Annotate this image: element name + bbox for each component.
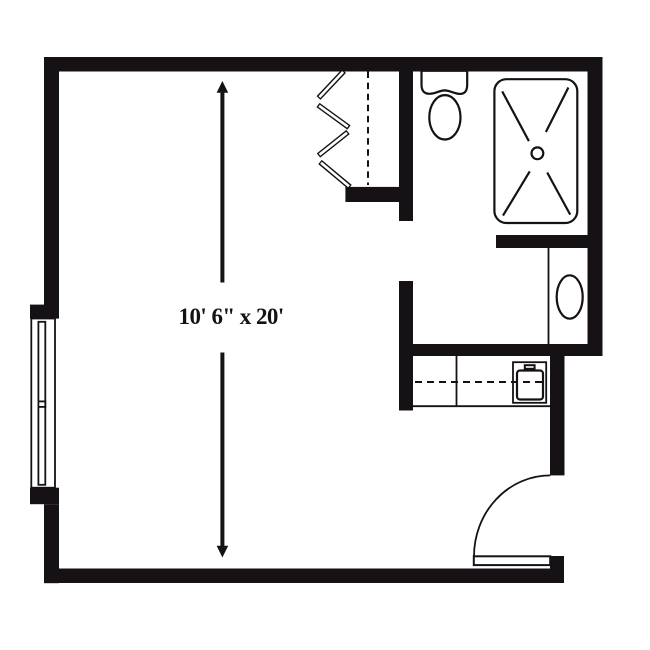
svg-text:10' 6" x 20': 10' 6" x 20'	[179, 304, 284, 329]
